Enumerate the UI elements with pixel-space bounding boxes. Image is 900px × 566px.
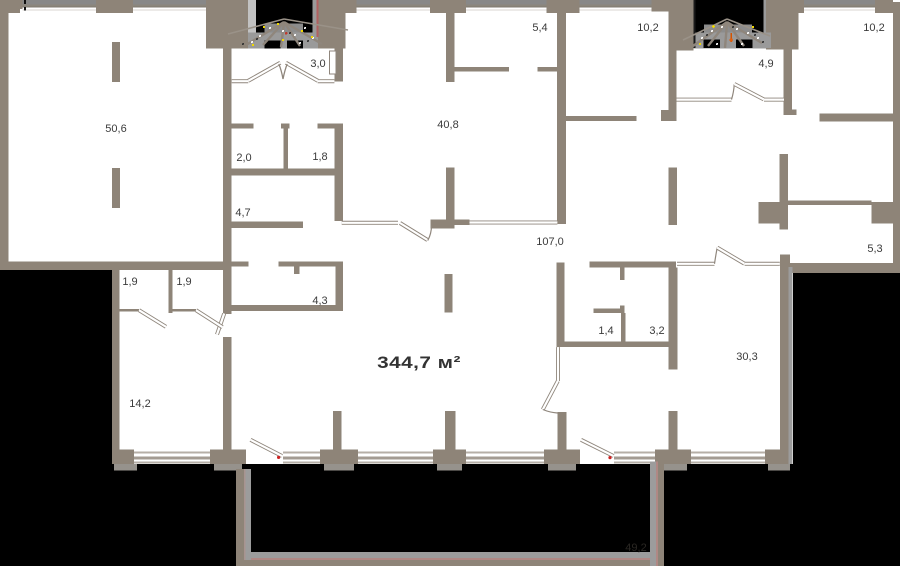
svg-text:1,9: 1,9 <box>122 276 137 288</box>
svg-text:1,4: 1,4 <box>598 325 613 337</box>
svg-text:5,4: 5,4 <box>532 22 547 34</box>
svg-text:40,8: 40,8 <box>437 119 458 131</box>
svg-text:1,9: 1,9 <box>176 276 191 288</box>
svg-text:4,3: 4,3 <box>312 295 327 307</box>
svg-text:4,7: 4,7 <box>235 207 250 219</box>
svg-text:4,9: 4,9 <box>758 58 773 70</box>
svg-text:30,3: 30,3 <box>736 351 757 363</box>
svg-text:2,0: 2,0 <box>236 152 251 164</box>
svg-text:5,3: 5,3 <box>867 243 882 255</box>
svg-text:1,8: 1,8 <box>312 151 327 163</box>
svg-text:344,7 м²: 344,7 м² <box>377 354 461 373</box>
svg-text:10,2: 10,2 <box>863 22 884 34</box>
svg-text:49,2: 49,2 <box>625 542 646 554</box>
svg-text:107,0: 107,0 <box>536 236 564 248</box>
svg-text:10,2: 10,2 <box>637 22 658 34</box>
svg-text:3,2: 3,2 <box>649 325 664 337</box>
svg-text:14,2: 14,2 <box>129 398 150 410</box>
svg-text:3,0: 3,0 <box>310 58 325 70</box>
svg-text:50,6: 50,6 <box>105 123 126 135</box>
